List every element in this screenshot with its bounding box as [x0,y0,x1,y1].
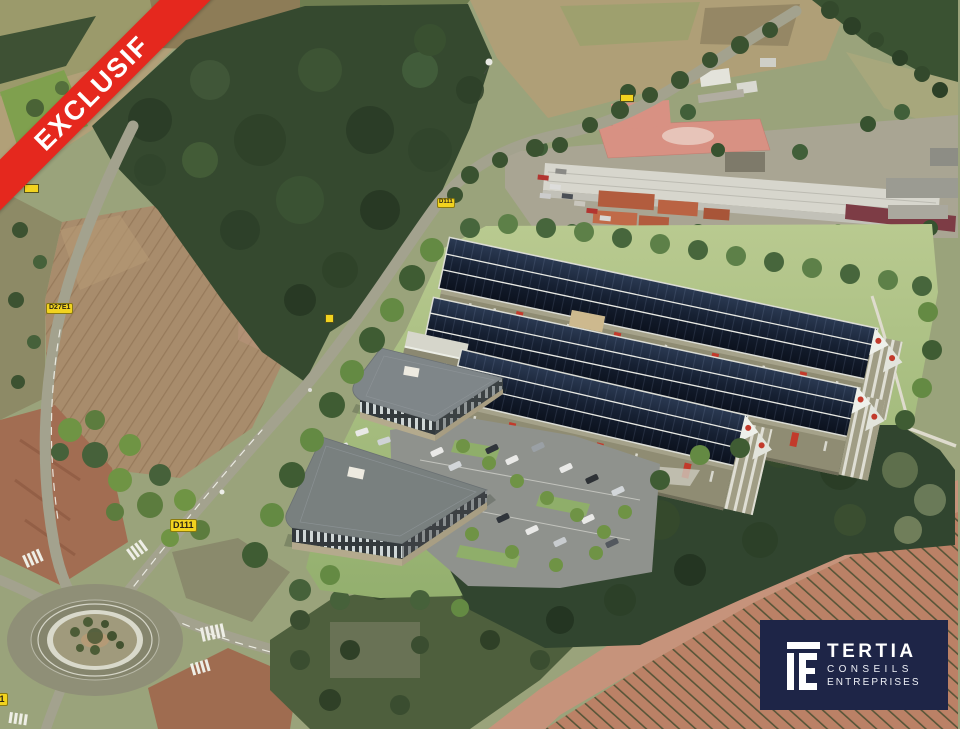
tertia-monogram-icon [787,642,820,690]
tertia-logo-text: TERTIA CONSEILS ENTREPRISES [827,642,921,688]
road-marker-junction [325,314,334,323]
road-marker-near-ribbon [24,184,39,193]
road-label-d27e1-partial: D27E1 [0,693,8,706]
road-label-d27e1: D27E1 [46,303,73,314]
tertia-logo-brand: TERTIA [827,642,921,661]
tertia-logo: TERTIA CONSEILS ENTREPRISES [760,620,948,710]
tertia-logo-line3: ENTREPRISES [827,678,921,688]
tertia-logo-line2: CONSEILS [827,665,921,675]
road-label-d111-upper: D111 [437,198,455,208]
aerial-promo-image: EXCLUSIF D111 D111 D27E1 D27E1 TERTIA CO… [0,0,960,729]
road-marker-top [620,94,634,102]
road-label-d111-lower: D111 [170,519,197,532]
